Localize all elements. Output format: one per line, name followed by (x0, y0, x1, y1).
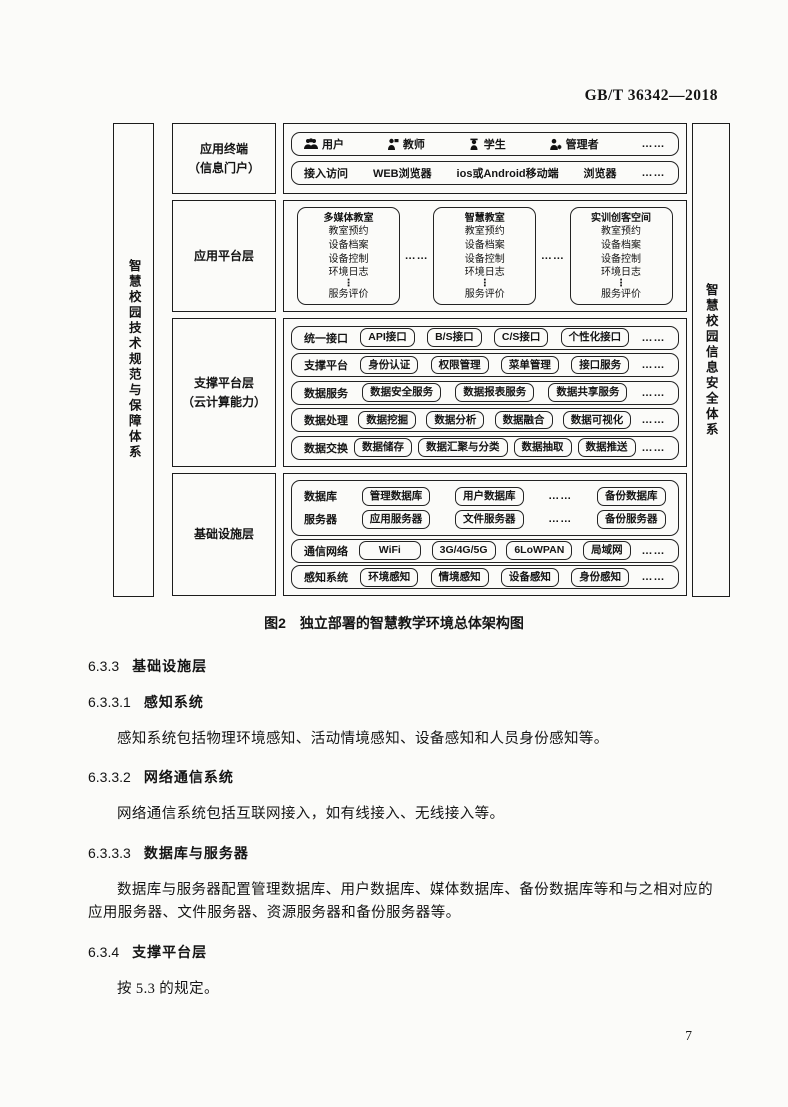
access-browser: 浏览器 (584, 165, 617, 181)
terminal-label-line2: （信息门户） (188, 159, 260, 178)
card-vertical-ellipsis: ⋮ (298, 280, 399, 288)
app-card-multimedia-classroom: 多媒体教室 教室预约 设备档案 设备控制 环境日志 ⋮ 服务评价 (297, 207, 400, 306)
chip: 6LoWPAN (506, 541, 572, 560)
chip: 3G/4G/5G (432, 541, 496, 560)
database-line: 数据库 管理数据库 用户数据库 …… 备份数据库 (304, 487, 666, 506)
card-item: 教室预约 (434, 225, 535, 239)
row-label: 数据库 (304, 488, 337, 504)
chip: 用户数据库 (455, 487, 524, 506)
app-card-smart-classroom: 智慧教室 教室预约 设备档案 设备控制 环境日志 ⋮ 服务评价 (433, 207, 536, 306)
figure-caption: 图2独立部署的智慧教学环境总体架构图 (0, 613, 788, 633)
support-label-line2: （云计算能力） (182, 393, 266, 412)
chip: 数据分析 (426, 411, 484, 430)
figure-caption-title: 独立部署的智慧教学环境总体架构图 (300, 615, 524, 631)
card-item: 设备控制 (298, 253, 399, 267)
users-icon (304, 138, 318, 150)
chip: 数据抽取 (514, 438, 572, 457)
chip: 数据汇聚与分类 (418, 438, 508, 457)
chip: 数据安全服务 (362, 383, 441, 402)
heading-title: 数据库与服务器 (144, 843, 249, 863)
figure-caption-label: 图2 (264, 615, 286, 631)
support-platform-label-box: 支撑平台层 （云计算能力） (172, 318, 276, 467)
heading-title: 感知系统 (144, 692, 204, 712)
chip: 文件服务器 (455, 510, 524, 529)
row-network: 通信网络 WiFi 3G/4G/5G 6LoWPAN 局域网 …… (291, 539, 679, 563)
chip: 环境感知 (360, 568, 418, 587)
row-label: 统一接口 (304, 330, 348, 346)
paragraph-6-3-3-2: 网络通信系统包括互联网接入，如有线接入、无线接入等。 (88, 803, 721, 826)
document-page: GB/T 36342—2018 智慧校园技术规范与保障体系 应用终端 （信息门户… (0, 0, 788, 1107)
row-data-service: 数据服务 数据安全服务 数据报表服务 数据共享服务 …… (291, 381, 679, 405)
infrastructure-label-box: 基础设施层 (172, 473, 276, 596)
card-title: 智慧教室 (434, 212, 535, 226)
chip: 管理数据库 (362, 487, 431, 506)
card-item: 设备控制 (571, 253, 672, 267)
body-sections: 6.3.3 基础设施层 6.3.3.1 感知系统 感知系统包括物理环境感知、活动… (88, 656, 721, 1001)
row-label: 通信网络 (304, 543, 348, 559)
role-manager: 管理者 (549, 136, 599, 152)
architecture-diagram: 智慧校园技术规范与保障体系 应用终端 （信息门户） 用户 (113, 123, 697, 597)
paragraph-6-3-3-1: 感知系统包括物理环境感知、活动情境感知、设备感知和人员身份感知等。 (88, 728, 721, 751)
heading-6-3-4: 6.3.4 支撑平台层 (88, 942, 721, 962)
access-ellipsis: …… (641, 167, 665, 179)
role-teacher-label: 教师 (403, 136, 425, 152)
heading-6-3-3: 6.3.3 基础设施层 (88, 656, 721, 676)
heading-number: 6.3.3.2 (88, 769, 131, 785)
chip: 备份数据库 (597, 487, 666, 506)
card-item: 设备档案 (298, 239, 399, 253)
row-data-processing: 数据处理 数据挖掘 数据分析 数据融合 数据可视化 …… (291, 408, 679, 432)
heading-title: 支撑平台层 (132, 942, 207, 962)
chip: API接口 (360, 328, 415, 347)
infrastructure-content: 数据库 管理数据库 用户数据库 …… 备份数据库 服务器 应用服务器 文件服务器… (283, 473, 687, 596)
row-ellipsis: …… (641, 332, 665, 344)
chip: WiFi (359, 541, 421, 560)
chip: 数据可视化 (563, 411, 632, 430)
card-item: 设备控制 (434, 253, 535, 267)
role-user-label: 用户 (322, 136, 344, 152)
paragraph-6-3-4: 按 5.3 的规定。 (88, 978, 721, 1001)
role-student: 学生 (468, 136, 506, 152)
card-title: 多媒体教室 (298, 212, 399, 226)
chip: C/S接口 (494, 328, 549, 347)
row-label: 数据交换 (304, 440, 348, 456)
row-label: 感知系统 (304, 569, 348, 585)
layer-app-platform: 应用平台层 多媒体教室 教室预约 设备档案 设备控制 环境日志 ⋮ 服务评价 …… (172, 200, 687, 312)
row-label: 数据处理 (304, 412, 348, 428)
support-label-line1: 支撑平台层 (194, 374, 254, 393)
card-item: 教室预约 (571, 225, 672, 239)
left-vertical-bar: 智慧校园技术规范与保障体系 (113, 123, 154, 597)
student-icon (468, 138, 480, 150)
layer-infrastructure: 基础设施层 数据库 管理数据库 用户数据库 …… 备份数据库 服务器 (172, 473, 687, 596)
row-database-server: 数据库 管理数据库 用户数据库 …… 备份数据库 服务器 应用服务器 文件服务器… (291, 480, 679, 536)
role-manager-label: 管理者 (566, 136, 599, 152)
row-ellipsis: …… (548, 513, 572, 525)
chip: 应用服务器 (362, 510, 431, 529)
heading-6-3-3-1: 6.3.3.1 感知系统 (88, 692, 721, 712)
right-bar-label: 智慧校园信息安全体系 (704, 283, 717, 438)
chip: 个性化接口 (561, 328, 630, 347)
card-footer: 服务评价 (571, 288, 672, 302)
app-platform-label-box: 应用平台层 (172, 200, 276, 312)
row-ellipsis: …… (641, 571, 665, 583)
row-ellipsis: …… (641, 545, 665, 557)
row-ellipsis: …… (642, 442, 666, 454)
card-vertical-ellipsis: ⋮ (571, 280, 672, 288)
chip: 设备感知 (501, 568, 559, 587)
infrastructure-label: 基础设施层 (194, 525, 254, 544)
chip: 身份认证 (360, 356, 418, 375)
terminal-access-row: 接入访问 WEB浏览器 ios或Android移动端 浏览器 …… (291, 161, 679, 185)
role-student-label: 学生 (484, 136, 506, 152)
manager-icon (549, 138, 562, 150)
left-bar-label: 智慧校园技术规范与保障体系 (127, 259, 140, 461)
chip: 局域网 (583, 541, 631, 560)
row-label: 服务器 (304, 511, 337, 527)
cards-ellipsis: …… (405, 250, 429, 262)
chip: 身份感知 (571, 568, 629, 587)
cards-ellipsis: …… (541, 250, 565, 262)
support-platform-content: 统一接口 API接口 B/S接口 C/S接口 个性化接口 …… 支撑平台 身份认… (283, 318, 687, 467)
chip: 权限管理 (431, 356, 489, 375)
heading-number: 6.3.3.1 (88, 694, 131, 710)
card-footer: 服务评价 (298, 288, 399, 302)
chip: 数据挖掘 (358, 411, 416, 430)
layer-support-platform: 支撑平台层 （云计算能力） 统一接口 API接口 B/S接口 C/S接口 个性化… (172, 318, 687, 467)
row-support-platform: 支撑平台 身份认证 权限管理 菜单管理 接口服务 …… (291, 353, 679, 377)
row-unified-interface: 统一接口 API接口 B/S接口 C/S接口 个性化接口 …… (291, 326, 679, 350)
app-platform-content: 多媒体教室 教室预约 设备档案 设备控制 环境日志 ⋮ 服务评价 …… 智慧教室… (283, 200, 687, 312)
teacher-icon (387, 138, 399, 150)
terminal-content: 用户 教师 学生 管理者 (283, 123, 687, 194)
terminal-roles-row: 用户 教师 学生 管理者 (291, 132, 679, 156)
card-title: 实训创客空间 (571, 212, 672, 226)
app-platform-label: 应用平台层 (194, 247, 254, 266)
row-ellipsis: …… (548, 490, 572, 502)
access-mobile: ios或Android移动端 (457, 165, 559, 181)
roles-ellipsis: …… (642, 138, 666, 150)
chip: 数据融合 (495, 411, 553, 430)
diagram-layers: 应用终端 （信息门户） 用户 教师 (172, 123, 687, 597)
row-label: 支撑平台 (304, 357, 348, 373)
row-label: 数据服务 (304, 385, 348, 401)
row-ellipsis: …… (642, 387, 666, 399)
heading-number: 6.3.4 (88, 944, 119, 960)
chip: 菜单管理 (501, 356, 559, 375)
chip: 情境感知 (431, 568, 489, 587)
row-sensing: 感知系统 环境感知 情境感知 设备感知 身份感知 …… (291, 565, 679, 589)
row-data-exchange: 数据交换 数据储存 数据汇聚与分类 数据抽取 数据推送 …… (291, 436, 679, 460)
heading-6-3-3-3: 6.3.3.3 数据库与服务器 (88, 843, 721, 863)
server-line: 服务器 应用服务器 文件服务器 …… 备份服务器 (304, 510, 666, 529)
heading-title: 网络通信系统 (144, 767, 234, 787)
chip: B/S接口 (427, 328, 482, 347)
layer-terminal: 应用终端 （信息门户） 用户 教师 (172, 123, 687, 194)
chip: 数据储存 (354, 438, 412, 457)
terminal-label-box: 应用终端 （信息门户） (172, 123, 276, 194)
chip: 备份服务器 (597, 510, 666, 529)
row-ellipsis: …… (641, 414, 665, 426)
page-number: 7 (685, 1028, 692, 1044)
chip: 接口服务 (571, 356, 629, 375)
heading-number: 6.3.3 (88, 658, 119, 674)
card-item: 设备档案 (434, 239, 535, 253)
card-footer: 服务评价 (434, 288, 535, 302)
card-item: 设备档案 (571, 239, 672, 253)
access-label: 接入访问 (304, 165, 348, 181)
chip: 数据推送 (578, 438, 636, 457)
chip: 数据报表服务 (455, 383, 534, 402)
role-user: 用户 (304, 136, 344, 152)
app-card-maker-space: 实训创客空间 教室预约 设备档案 设备控制 环境日志 ⋮ 服务评价 (570, 207, 673, 306)
card-vertical-ellipsis: ⋮ (434, 280, 535, 288)
paragraph-6-3-3-3: 数据库与服务器配置管理数据库、用户数据库、媒体数据库、备份数据库等和与之相对应的… (88, 879, 721, 926)
row-ellipsis: …… (641, 359, 665, 371)
role-teacher: 教师 (387, 136, 425, 152)
access-web-browser: WEB浏览器 (373, 165, 432, 181)
chip: 数据共享服务 (548, 383, 627, 402)
heading-number: 6.3.3.3 (88, 845, 131, 861)
right-vertical-bar: 智慧校园信息安全体系 (692, 123, 730, 597)
card-item: 教室预约 (298, 225, 399, 239)
terminal-label-line1: 应用终端 (200, 140, 248, 159)
doc-number: GB/T 36342—2018 (585, 87, 718, 105)
heading-6-3-3-2: 6.3.3.2 网络通信系统 (88, 767, 721, 787)
heading-title: 基础设施层 (132, 656, 207, 676)
